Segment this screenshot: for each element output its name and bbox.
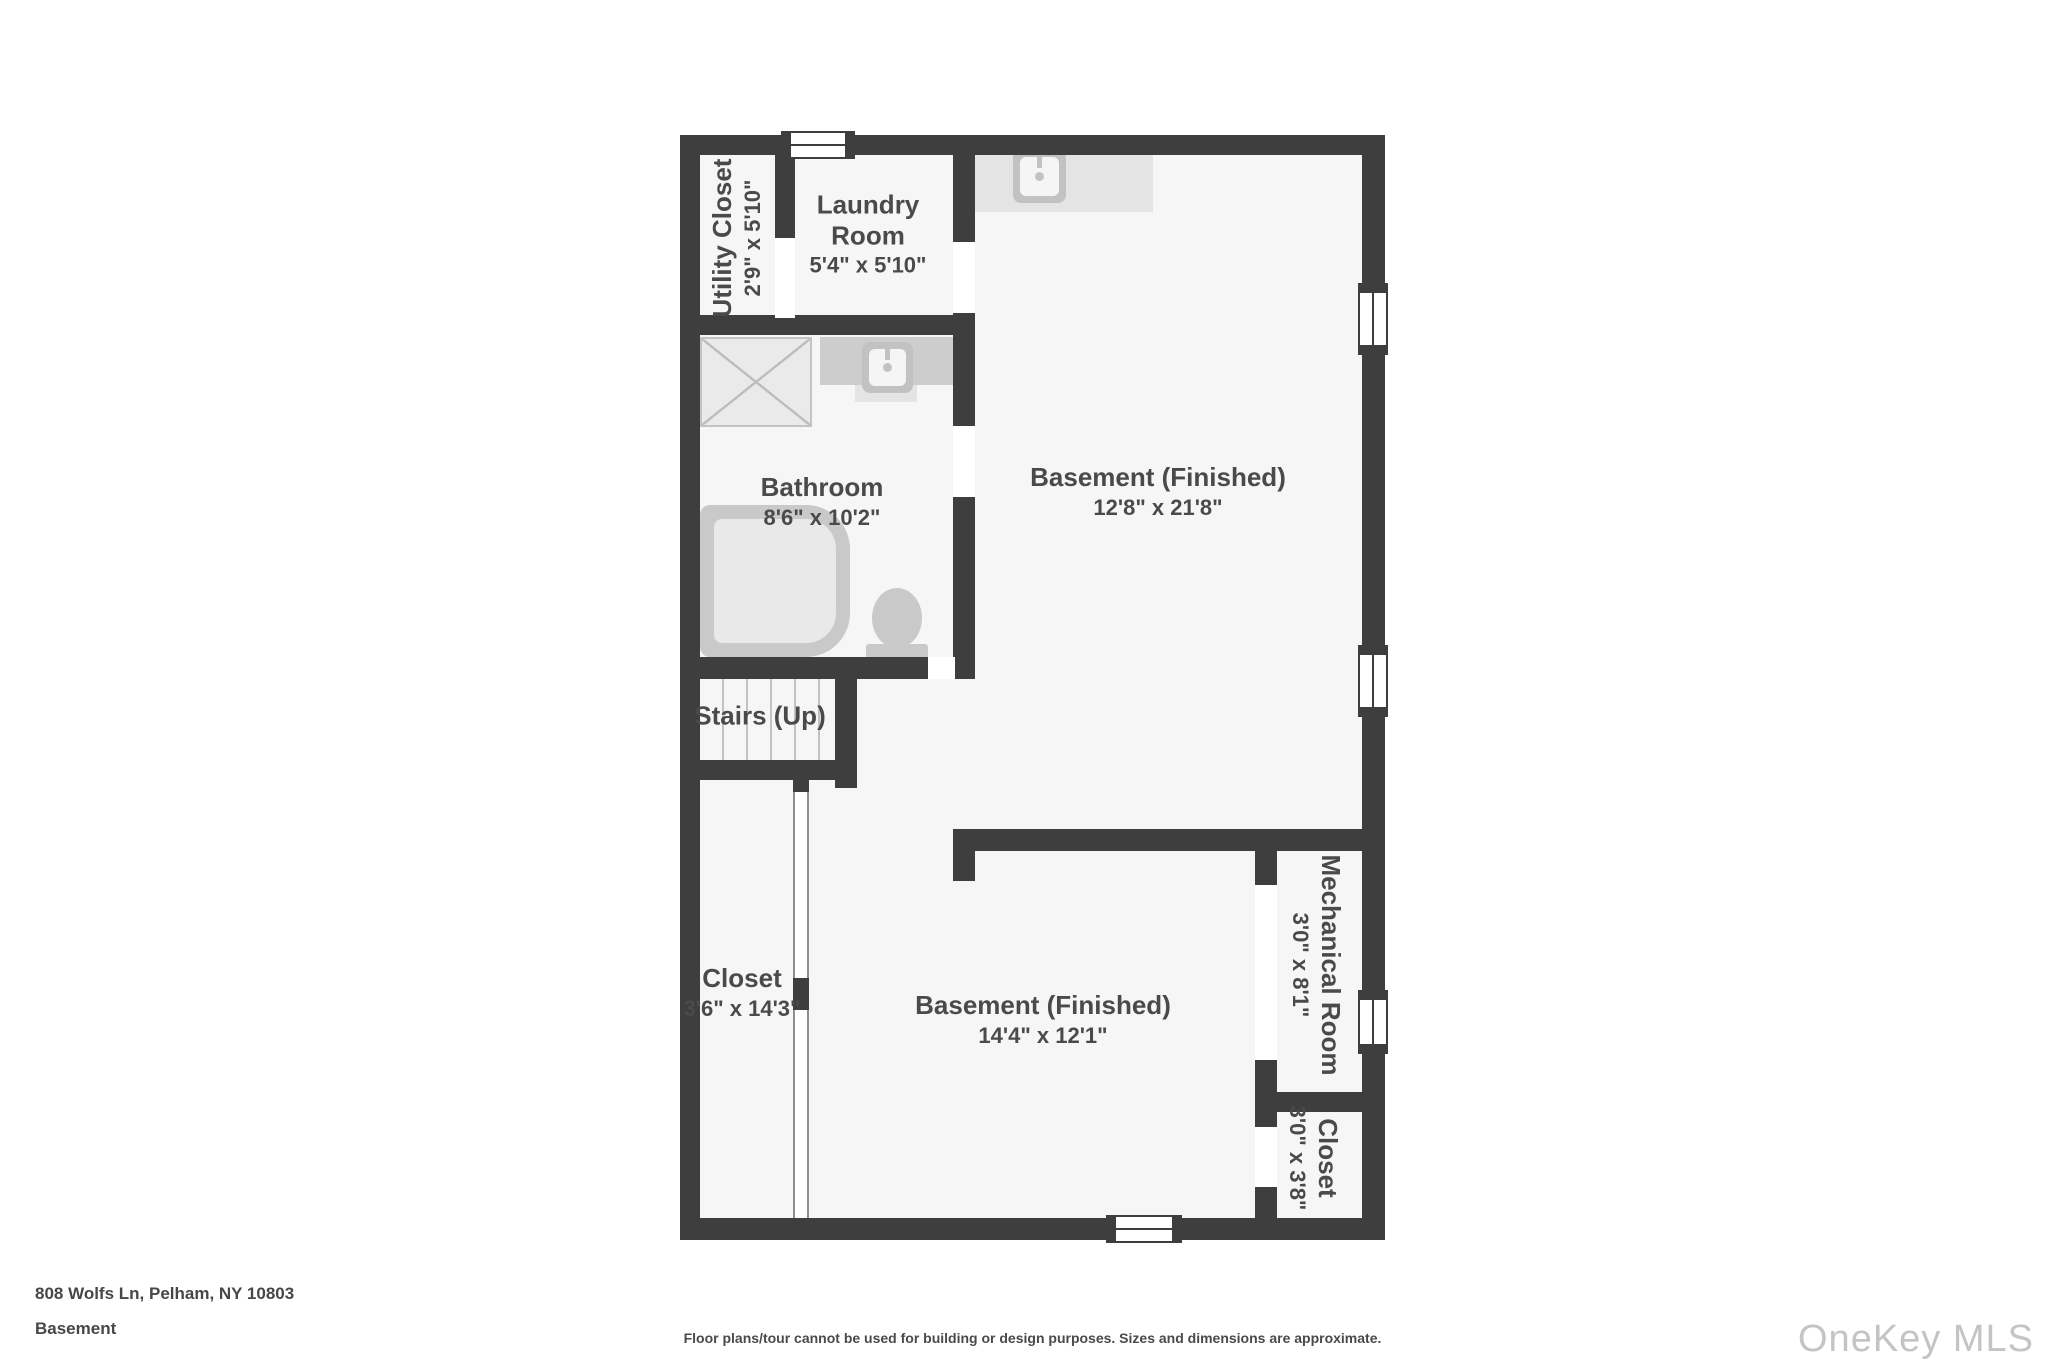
room-name: Closet	[1313, 1106, 1344, 1211]
wall-bottom	[680, 1218, 1385, 1240]
room-label-bathroom: Bathroom 8'6" x 10'2"	[761, 472, 884, 532]
room-dimensions: 3'0" x 8'1"	[1286, 854, 1316, 1075]
room-name: Utility Closet	[707, 159, 738, 318]
wall-mechanical-left	[1255, 851, 1277, 885]
room-label-mechanical: Mechanical Room 3'0" x 8'1"	[1286, 854, 1346, 1075]
wall-bathroom-bottom	[680, 657, 928, 679]
shower-pan-icon	[700, 337, 812, 427]
property-address: 808 Wolfs Ln, Pelham, NY 10803	[35, 1284, 294, 1304]
sink-icon	[1013, 150, 1066, 203]
door-opening	[953, 242, 975, 313]
room-label-closet-left: Closet 3'6" x 14'3"	[684, 963, 801, 1023]
room-dimensions: 14'4" x 12'1"	[915, 1020, 1171, 1050]
disclaimer-text: Floor plans/tour cannot be used for buil…	[680, 1330, 1385, 1346]
room-label-stairs: Stairs (Up)	[694, 701, 825, 732]
sink-drain	[1035, 172, 1044, 181]
wall-row1-bottom	[680, 315, 975, 335]
wall-closet-br-left	[1255, 1112, 1277, 1127]
floor-plan-canvas: Utility Closet 2'9" x 5'10" Laundry Room…	[0, 0, 2048, 1365]
room-name: Basement (Finished)	[1030, 462, 1286, 493]
wall-left	[680, 135, 700, 1240]
door-opening	[775, 238, 795, 318]
room-dimensions: 8'6" x 10'2"	[761, 502, 884, 532]
closet-door-track-stub	[793, 780, 809, 792]
window-icon	[1358, 990, 1388, 1054]
sink-drain	[883, 363, 892, 372]
wall-basement-divider-stub	[953, 851, 975, 881]
toilet-icon	[872, 588, 922, 648]
room-dimensions: 3'6" x 14'3"	[684, 993, 801, 1023]
door-opening	[928, 657, 955, 679]
window-icon	[781, 131, 855, 159]
door-opening	[1255, 885, 1277, 1060]
room-name: Basement (Finished)	[915, 990, 1171, 1021]
room-dimensions: 2'9" x 5'10"	[737, 159, 767, 318]
onekey-mls-watermark: OneKey MLS	[1798, 1318, 2034, 1361]
bathtub-basin	[714, 519, 836, 643]
room-name: Stairs (Up)	[694, 701, 825, 732]
room-dimensions: 5'4" x 5'10"	[793, 251, 943, 281]
room-name: Mechanical Room	[1316, 854, 1347, 1075]
room-label-utility-closet: Utility Closet 2'9" x 5'10"	[707, 159, 767, 318]
wall-laundry-right	[953, 313, 975, 426]
window-icon	[1106, 1215, 1182, 1243]
room-name: Bathroom	[761, 472, 884, 503]
room-label-laundry: Laundry Room 5'4" x 5'10"	[793, 189, 943, 280]
window-icon	[1358, 283, 1388, 355]
door-opening	[953, 426, 975, 497]
room-name: Laundry Room	[793, 189, 943, 250]
sink-faucet	[885, 344, 890, 360]
room-label-basement-lower: Basement (Finished) 14'4" x 12'1"	[915, 990, 1171, 1050]
wall-bathroom-right	[953, 497, 975, 679]
wall-closet-br-left	[1255, 1187, 1277, 1218]
room-label-closet-br: Closet 3'0" x 3'8"	[1283, 1106, 1343, 1211]
wall-laundry-right	[953, 135, 975, 242]
room-name: Closet	[684, 963, 801, 994]
wall-stairs-bottom	[680, 760, 857, 780]
room-dimensions: 3'0" x 3'8"	[1283, 1106, 1313, 1211]
room-label-basement-upper: Basement (Finished) 12'8" x 21'8"	[1030, 462, 1286, 522]
door-opening	[1255, 1127, 1277, 1187]
floor-level-label: Basement	[35, 1319, 116, 1339]
room-dimensions: 12'8" x 21'8"	[1030, 492, 1286, 522]
wall-basement-divider	[953, 829, 1385, 851]
window-icon	[1358, 645, 1388, 717]
sink-icon	[862, 342, 913, 393]
wall-mechanical-left	[1255, 1060, 1277, 1092]
